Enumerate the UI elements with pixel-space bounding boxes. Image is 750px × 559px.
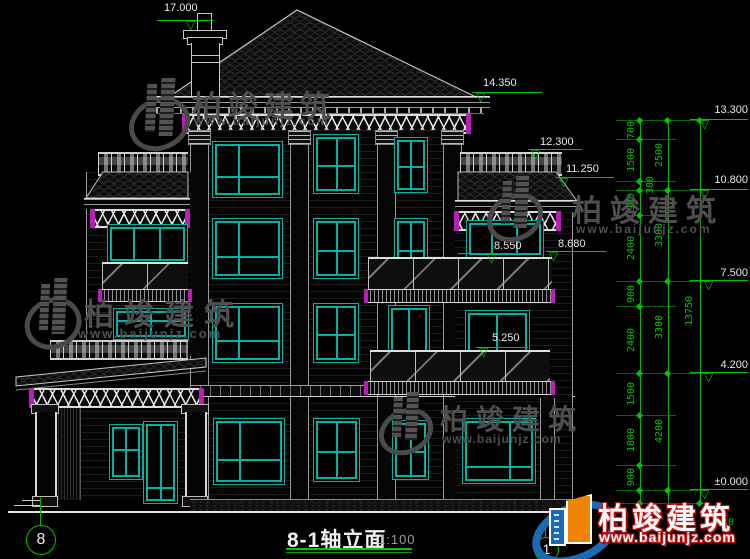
entry-step — [14, 505, 40, 506]
dimension-line — [668, 120, 669, 503]
dim-tick — [664, 117, 671, 124]
dim-tick — [636, 462, 643, 469]
extension-line — [616, 306, 676, 307]
level-line — [690, 280, 748, 281]
dim-text: 1500 — [627, 143, 637, 177]
entry-door — [143, 421, 178, 504]
level-label: 7.500 — [702, 267, 748, 279]
drawing-scale: 1:100 — [378, 532, 416, 547]
pilaster-cap — [288, 130, 311, 145]
dim-text: 700 — [627, 116, 637, 144]
balcony-door — [388, 305, 430, 355]
dim-text: 900 — [627, 463, 637, 491]
window — [313, 134, 359, 194]
left-wing-eave — [84, 198, 190, 209]
watermark-url: www.baijunjz.com — [576, 222, 712, 236]
lower-balcony-glass-railing — [370, 350, 550, 384]
window — [212, 141, 283, 198]
watermark-logo-icon — [378, 392, 432, 452]
chimney-band — [192, 55, 219, 63]
window — [213, 418, 285, 485]
window — [313, 418, 360, 482]
level-label: 14.350 — [483, 77, 517, 89]
extension-line — [616, 465, 676, 466]
watermark-logo-icon — [486, 176, 542, 240]
dim-text: 3300 — [655, 310, 665, 344]
dim-tick — [636, 178, 643, 185]
level-triangle-icon: ▽ — [531, 149, 540, 159]
window — [313, 303, 359, 363]
pilaster-cap — [441, 130, 464, 145]
dim-text: 900 — [627, 280, 637, 308]
level-label: 11.250 — [566, 163, 599, 175]
window — [394, 137, 428, 193]
dim-text: 1500 — [627, 377, 637, 411]
dim-text: 2500 — [655, 138, 665, 172]
level-label: 12.300 — [540, 136, 574, 148]
porch-column — [185, 412, 207, 496]
level-triangle-icon: ▽ — [476, 92, 485, 102]
level-line — [690, 372, 748, 373]
level-line — [690, 489, 748, 490]
logo-building-icon — [549, 508, 566, 546]
dim-tick — [636, 278, 643, 285]
level-label: 4.200 — [702, 359, 748, 371]
logo-url-text: www.baijunjz.com — [599, 529, 736, 545]
dim-tick — [636, 136, 643, 143]
porch-window — [109, 424, 143, 480]
dim-text: 2400 — [627, 323, 637, 357]
porch-corner-pier — [58, 404, 81, 500]
ground-line — [8, 511, 578, 513]
upper-balcony-glass-railing — [368, 257, 552, 292]
window — [107, 224, 188, 264]
level-triangle-icon: ▽ — [479, 347, 488, 357]
watermark-logo-icon — [24, 278, 80, 348]
dim-text: 4200 — [655, 414, 665, 448]
pilaster-cap — [188, 130, 211, 145]
entry-step — [22, 500, 40, 501]
level-label: 13.300 — [698, 104, 748, 116]
extension-line — [616, 139, 676, 140]
level-triangle-icon: ▽ — [186, 20, 195, 30]
level-triangle-icon: ▽ — [704, 372, 713, 382]
watermark-url: www.baijunjz.com — [78, 326, 222, 341]
brand-logo: 柏竣建筑 www.baijunjz.com — [528, 492, 750, 556]
porch-roof — [14, 353, 208, 393]
window — [212, 218, 283, 279]
logo-building-icon — [566, 494, 592, 544]
level-label: 10.800 — [698, 174, 748, 186]
axis-bubble: 8 — [26, 525, 56, 555]
level-triangle-icon: ▽ — [704, 280, 713, 290]
axis-leader — [40, 498, 41, 525]
upper-balcony-fascia — [366, 289, 553, 303]
level-triangle-icon: ▽ — [487, 253, 496, 263]
dim-text: 13750 — [685, 290, 695, 332]
dim-text: 2400 — [627, 231, 637, 265]
dim-tick — [636, 303, 643, 310]
title-underline — [286, 552, 412, 553]
title-underline — [286, 548, 412, 550]
watermark-logo-icon — [128, 78, 190, 150]
left-balcony-glass-railing — [102, 262, 188, 292]
extension-line — [616, 415, 676, 416]
dimension-line — [640, 120, 641, 503]
level-triangle-icon: ▽ — [559, 177, 568, 187]
dim-tick — [636, 412, 643, 419]
porch-column — [35, 412, 57, 496]
dim-tick — [664, 370, 671, 377]
level-triangle-icon: ▽ — [700, 119, 709, 129]
window — [313, 218, 359, 279]
level-label: ±0.000 — [696, 476, 748, 488]
elevation-drawing: 700 1500 300 900 2400 900 2400 1500 1800… — [0, 0, 750, 559]
dim-text: 1800 — [627, 423, 637, 457]
dim-tick — [636, 117, 643, 124]
level-label: 8.680 — [558, 238, 586, 250]
dim-tick — [636, 370, 643, 377]
level-triangle-icon: ▽ — [549, 251, 558, 261]
level-label: 5.250 — [492, 332, 520, 344]
dim-tick — [664, 278, 671, 285]
pilaster — [290, 143, 309, 499]
watermark-url: www.baijunjz.com — [194, 114, 330, 128]
level-line — [690, 119, 748, 120]
level-label: 17.000 — [164, 2, 198, 14]
watermark-url: www.baijunjz.com — [442, 432, 562, 446]
extension-line — [616, 373, 708, 374]
